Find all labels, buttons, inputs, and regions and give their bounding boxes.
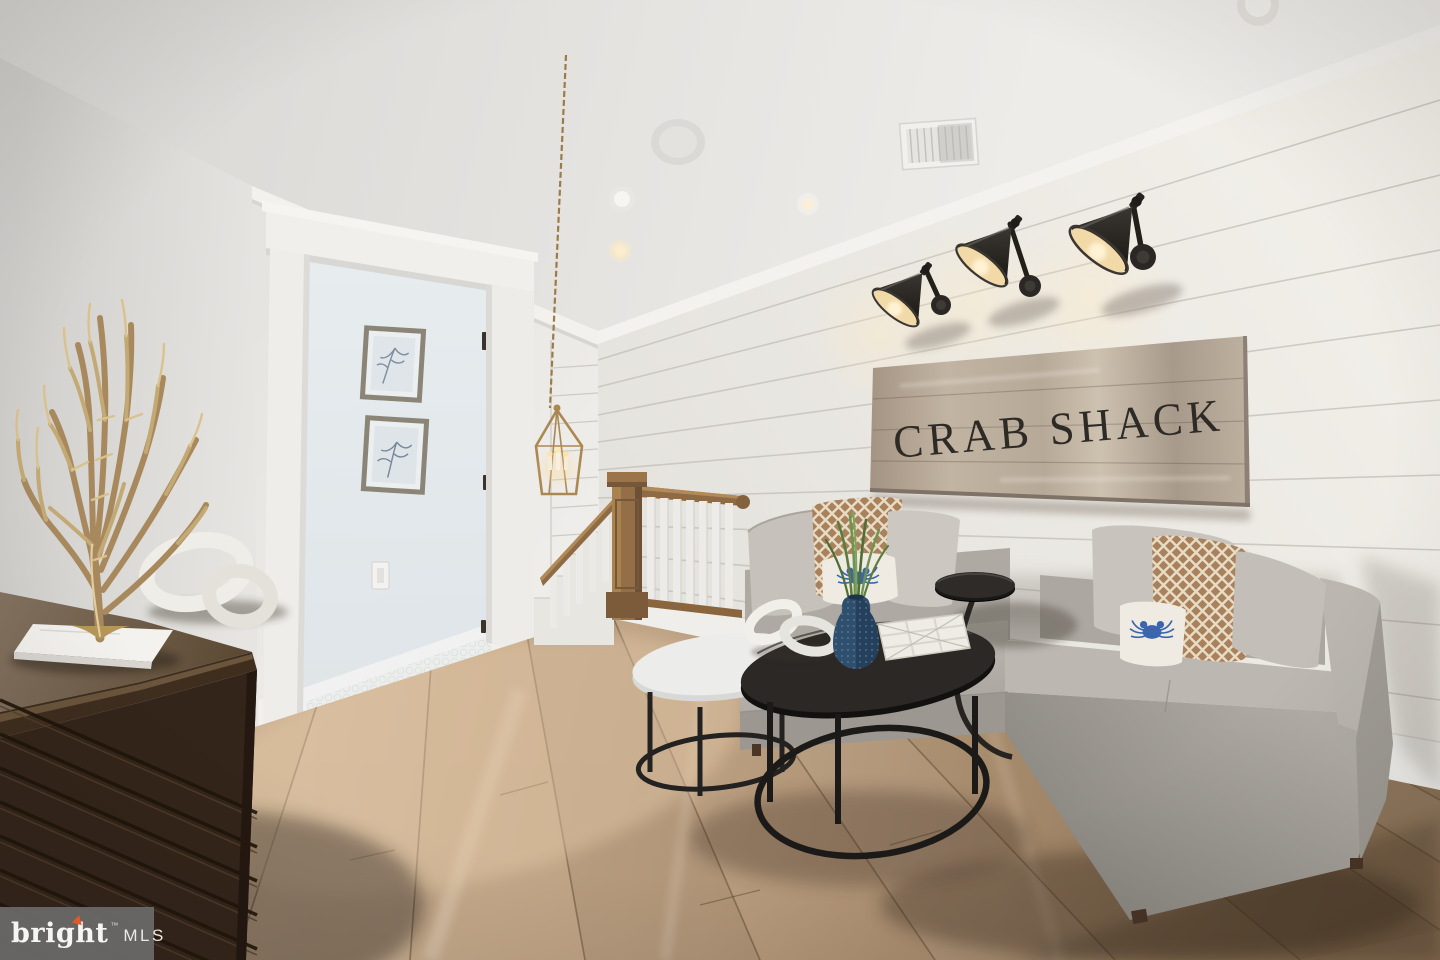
room-photo: CRAB SHACK — [0, 0, 1440, 960]
watermark-trademark: ™ — [110, 921, 118, 930]
watermark-brand-text: bright — [11, 920, 108, 947]
watermark-suffix-text: MLS — [123, 926, 165, 946]
photo-vignette — [0, 0, 1440, 960]
scene-svg: CRAB SHACK — [0, 0, 1440, 960]
brightmls-watermark: bright ™ MLS — [0, 907, 154, 960]
